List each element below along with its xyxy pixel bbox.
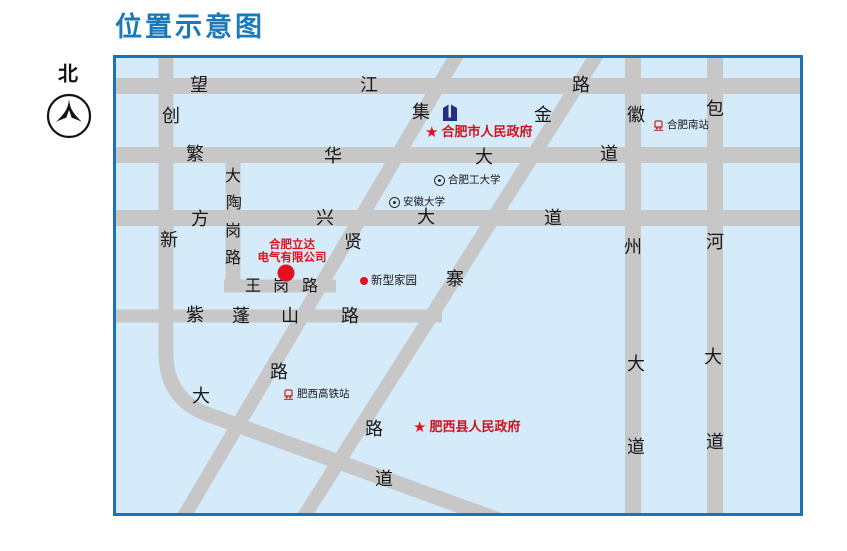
road-label: 王 xyxy=(245,278,261,294)
road-label: 大 xyxy=(417,209,435,227)
road-label: 徽 xyxy=(627,107,645,125)
map: 望 江 路 繁 华 大 道 方 兴 大 道 王 岗 路 紫 蓬 山 路 创 新 … xyxy=(113,55,803,516)
company-name-line1: 合肥立达 xyxy=(258,238,327,251)
road-label: 华 xyxy=(324,148,342,166)
poi-label: 安徽大学 xyxy=(403,197,445,208)
road-label: 道 xyxy=(627,439,645,457)
company-label: 合肥立达 电气有限公司 xyxy=(258,238,327,263)
road-label: 大 xyxy=(704,349,722,367)
road-label: 大 xyxy=(475,149,493,167)
road-label: 贤 xyxy=(344,234,362,252)
road-label: 金 xyxy=(534,107,552,125)
page-title: 位置示意图 xyxy=(115,5,265,44)
road-label: 路 xyxy=(302,278,318,294)
road-label: 集 xyxy=(412,104,430,122)
road-label: 紫 xyxy=(186,307,204,325)
company-location-dot xyxy=(278,265,295,282)
poi-hefei-south-station: 合肥南站 xyxy=(653,120,709,131)
road-label: 陶 xyxy=(226,195,242,211)
school-icon xyxy=(389,197,400,208)
road-label: 大 xyxy=(192,388,210,406)
road-label: 路 xyxy=(270,364,288,382)
poi-label: 新型家园 xyxy=(371,275,417,287)
road-label: 岗 xyxy=(225,223,241,239)
road-label: 新 xyxy=(160,232,178,250)
road-label: 道 xyxy=(544,210,562,228)
poi-label: 合肥南站 xyxy=(667,120,709,131)
road-label: 路 xyxy=(225,250,241,266)
road-label: 寨 xyxy=(446,271,464,289)
road-label: 大 xyxy=(627,356,645,374)
road-label: 路 xyxy=(341,308,359,326)
road-label: 路 xyxy=(365,421,383,439)
road-label: 河 xyxy=(706,234,724,252)
poi-feixi-hsr-station: 肥西高铁站 xyxy=(283,389,350,400)
poi-xinxing-jiayuan: 新型家园 xyxy=(360,275,417,287)
poi-city-government: ★ 合肥市人民政府 xyxy=(425,125,532,140)
road-label: 州 xyxy=(624,239,642,257)
road-label: 大 xyxy=(225,168,241,184)
road-label: 望 xyxy=(190,77,208,95)
train-station-icon xyxy=(653,120,664,131)
poi-label: 肥西高铁站 xyxy=(297,389,350,400)
road-label: 创 xyxy=(162,108,180,126)
poi-anhui-university: 安徽大学 xyxy=(389,197,445,208)
poi-label: 合肥市人民政府 xyxy=(441,126,532,139)
road-label: 繁 xyxy=(186,146,204,164)
government-building-icon xyxy=(442,104,458,123)
road-label: 道 xyxy=(706,434,724,452)
poi-label: 肥西县人民政府 xyxy=(429,421,520,434)
poi-hfut: 合肥工大学 xyxy=(434,175,501,186)
road-label: 蓬 xyxy=(232,308,250,326)
road-label: 路 xyxy=(572,77,590,95)
road-label: 道 xyxy=(600,146,618,164)
road-label: 江 xyxy=(360,77,378,95)
road-label: 道 xyxy=(375,471,393,489)
poi-county-government: ★ 肥西县人民政府 xyxy=(413,420,520,435)
road-label: 方 xyxy=(191,211,209,229)
poi-label: 合肥工大学 xyxy=(448,175,501,186)
road-label: 兴 xyxy=(316,210,334,228)
star-icon: ★ xyxy=(425,125,438,140)
school-icon xyxy=(434,175,445,186)
location-dot-icon xyxy=(360,277,368,285)
star-icon: ★ xyxy=(413,420,426,435)
train-station-icon xyxy=(283,389,294,400)
page: 位置示意图 北 望 江 路 繁 xyxy=(0,0,847,551)
road-label: 山 xyxy=(281,308,299,326)
north-label: 北 xyxy=(58,58,78,87)
company-name-line2: 电气有限公司 xyxy=(258,251,327,264)
compass-icon xyxy=(45,92,93,140)
road-label: 包 xyxy=(706,101,724,119)
